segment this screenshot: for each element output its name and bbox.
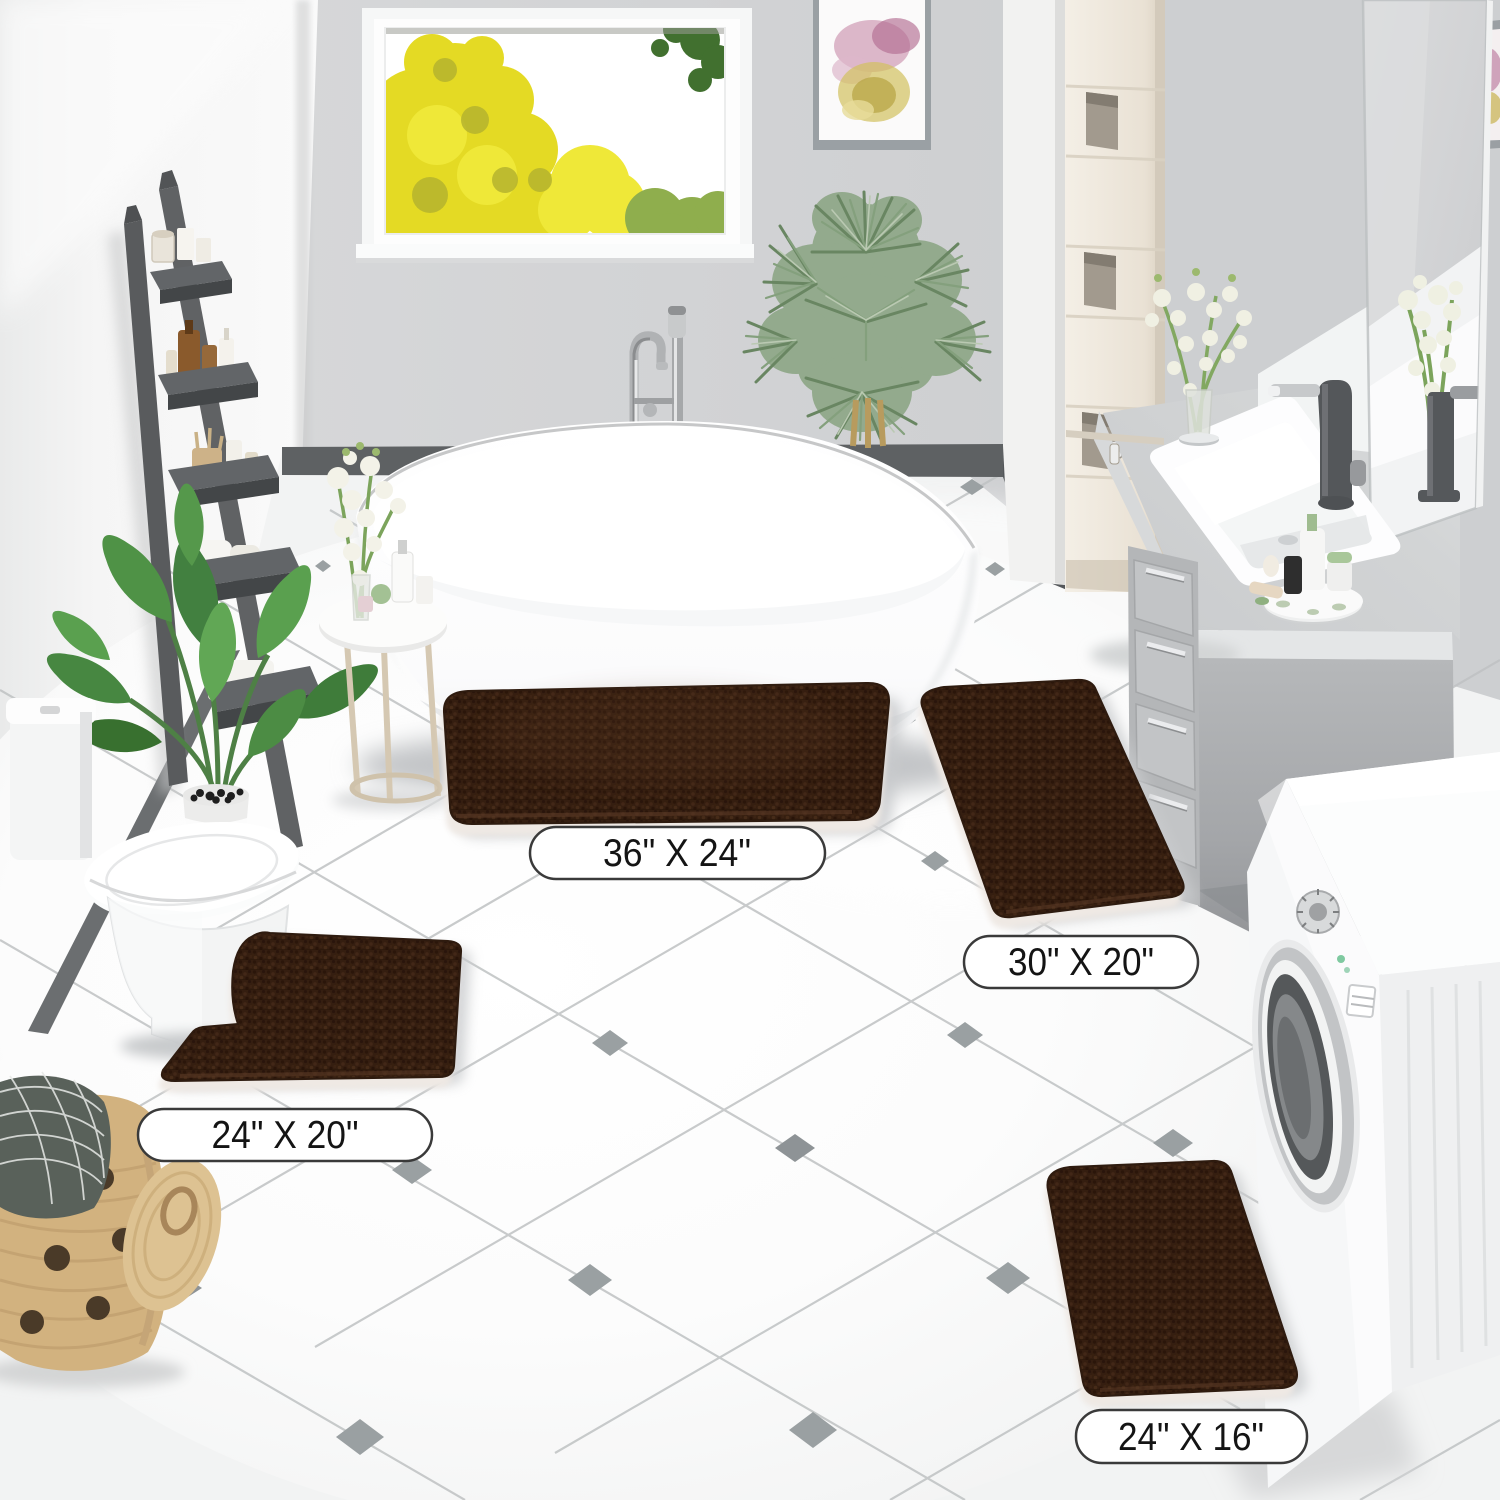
svg-text:24" X 16": 24" X 16": [1118, 1416, 1264, 1459]
svg-text:30" X 20": 30" X 20": [1008, 941, 1154, 984]
svg-text:36" X 24": 36" X 24": [603, 832, 751, 875]
svg-text:24" X 20": 24" X 20": [212, 1114, 359, 1157]
